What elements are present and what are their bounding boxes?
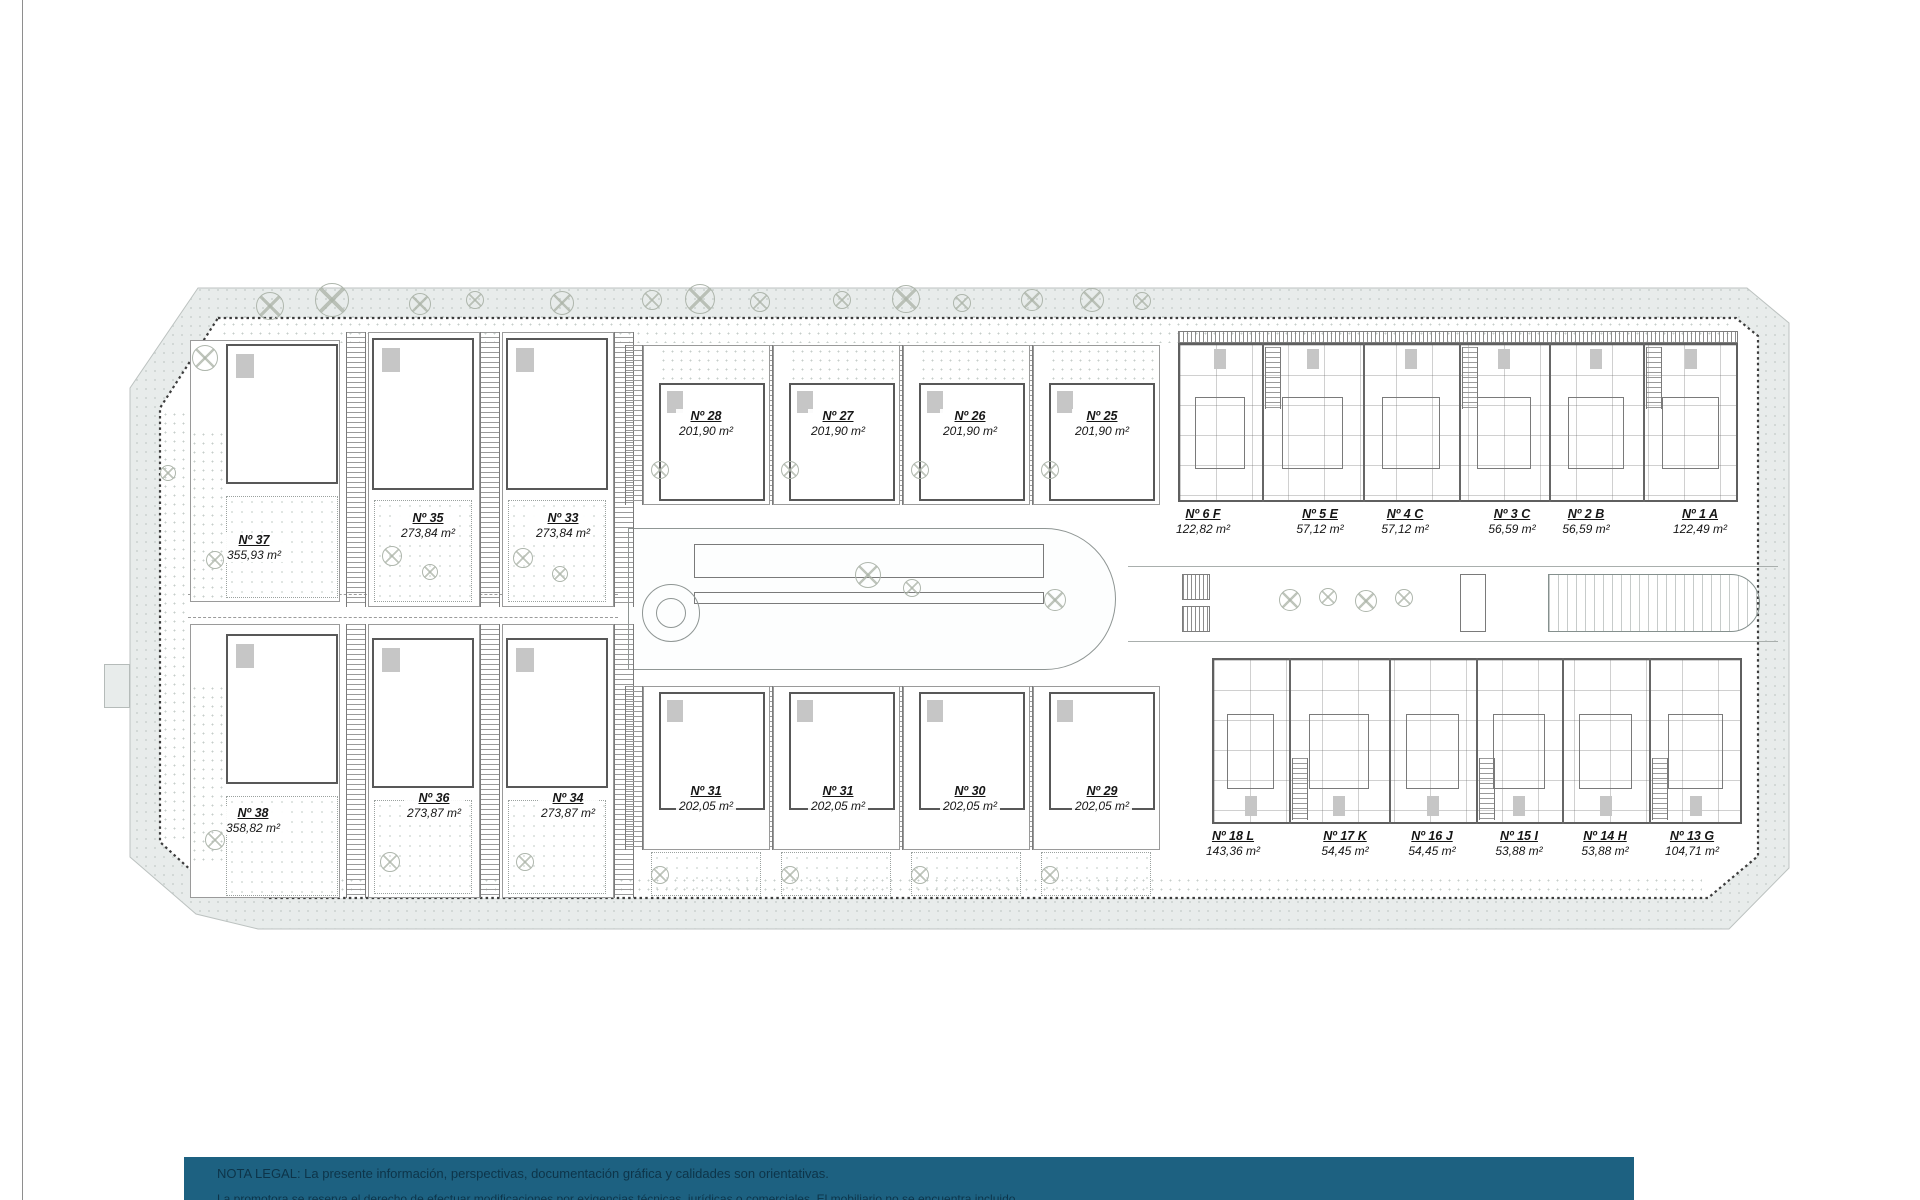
unit-number-label: Nº 37 (227, 533, 281, 548)
unit-number-label: Nº 13 G (1665, 829, 1719, 844)
tree-icon (1041, 461, 1059, 479)
stair-core (1057, 391, 1073, 413)
unit-tag: Nº 14 H53,88 m² (1578, 829, 1631, 858)
apartment-room (1568, 397, 1624, 469)
stair-band (625, 686, 643, 850)
unit-tag: Nº 18 L143,36 m² (1203, 829, 1263, 858)
unit-tag: Nº 29202,05 m² (1072, 784, 1132, 813)
tree-icon (781, 461, 799, 479)
unit-area-label: 273,87 m² (541, 806, 595, 820)
tree-icon (160, 465, 176, 481)
apartment-room (1668, 714, 1724, 789)
unit-number-label: Nº 1 A (1673, 507, 1727, 522)
tree-icon (409, 293, 431, 315)
parking-pad (1182, 606, 1210, 632)
tree-icon (911, 866, 929, 884)
unit-number-label: Nº 38 (226, 806, 280, 821)
stair-band (346, 332, 366, 607)
apartment-room (1662, 397, 1719, 469)
unit-number-label: Nº 30 (943, 784, 997, 799)
unit-number-label: Nº 16 J (1408, 829, 1455, 844)
stair-band (1292, 758, 1308, 820)
tree-icon (516, 853, 534, 871)
unit-number-label: Nº 34 (541, 791, 595, 806)
unit-number-label: Nº 6 F (1176, 507, 1230, 522)
unit-area-label: 104,71 m² (1665, 844, 1719, 858)
tree-icon (422, 564, 438, 580)
unit-tag: Nº 6 F122,82 m² (1173, 507, 1233, 536)
tree-icon (550, 291, 574, 315)
stair-band (346, 624, 366, 898)
stair-core (1057, 700, 1073, 722)
party-wall (1476, 658, 1478, 824)
stair-core (516, 648, 534, 672)
entry-core (1245, 796, 1257, 816)
tree-icon (651, 866, 669, 884)
unit-area-label: 202,05 m² (943, 799, 997, 813)
tree-icon (1133, 292, 1151, 310)
tree-icon (781, 866, 799, 884)
tree-icon (651, 461, 669, 479)
tree-icon (380, 852, 400, 872)
tree-icon (1319, 588, 1337, 606)
tree-icon (1044, 589, 1066, 611)
tree-icon (855, 562, 881, 588)
unit-tag: Nº 38358,82 m² (223, 806, 283, 835)
party-wall (1549, 343, 1551, 502)
unit-number-label: Nº 33 (536, 511, 590, 526)
tree-icon (256, 292, 284, 320)
stair-band (480, 332, 500, 607)
unit-tag: Nº 37355,93 m² (224, 533, 284, 562)
unit-tag: Nº 4 C57,12 m² (1378, 507, 1431, 536)
party-wall (1459, 343, 1461, 502)
unit-tag: Nº 13 G104,71 m² (1662, 829, 1722, 858)
unit-area-label: 201,90 m² (811, 424, 865, 438)
roof-hatch (1178, 331, 1738, 343)
unit-number-label: Nº 27 (811, 409, 865, 424)
entry-core (1498, 349, 1510, 369)
brochure-page: { "plan": { "colors": { "street_band": "… (0, 0, 1920, 1200)
stair-core (382, 648, 400, 672)
unit-area-label: 201,90 m² (1075, 424, 1129, 438)
unit-tag: Nº 31202,05 m² (676, 784, 736, 813)
stair-core (516, 348, 534, 372)
apartment-room (1406, 714, 1458, 789)
unit-area-label: 143,36 m² (1206, 844, 1260, 858)
tree-icon (206, 551, 224, 569)
apartment-room (1195, 397, 1245, 469)
villa-garden (190, 430, 224, 598)
entry-core (1600, 796, 1612, 816)
unit-number-label: Nº 35 (401, 511, 455, 526)
stair-band (1265, 347, 1281, 409)
unit-area-label: 54,45 m² (1321, 844, 1368, 858)
apartment-room (1227, 714, 1273, 789)
party-wall (1289, 658, 1291, 824)
legal-note-text-clipped: La promotora se reserva el derecho de ef… (217, 1192, 1019, 1200)
party-wall (1389, 658, 1391, 824)
unit-area-label: 273,84 m² (536, 526, 590, 540)
tree-icon (513, 548, 533, 568)
unit-tag: Nº 26201,90 m² (940, 409, 1000, 438)
unit-number-label: Nº 31 (679, 784, 733, 799)
unit-number-label: Nº 18 L (1206, 829, 1260, 844)
unit-area-label: 56,59 m² (1488, 522, 1535, 536)
tree-icon (1355, 590, 1377, 612)
path-line (188, 617, 618, 618)
spiral-stair (656, 598, 686, 628)
tree-icon (1279, 589, 1301, 611)
stair-core (927, 700, 943, 722)
entry-core (1513, 796, 1525, 816)
party-wall (1363, 343, 1365, 502)
entry-core (1405, 349, 1417, 369)
unit-area-label: 273,84 m² (401, 526, 455, 540)
unit-number-label: Nº 25 (1075, 409, 1129, 424)
unit-area-label: 57,12 m² (1296, 522, 1343, 536)
unit-number-label: Nº 5 E (1296, 507, 1343, 522)
site-plan: Nº 37355,93 m²Nº 35273,84 m²Nº 33273,84 … (0, 0, 1920, 1200)
party-wall (1562, 658, 1564, 824)
unit-number-label: Nº 29 (1075, 784, 1129, 799)
stair-band (1646, 347, 1662, 409)
entry-core (1333, 796, 1345, 816)
unit-tag: Nº 28201,90 m² (676, 409, 736, 438)
unit-tag: Nº 36273,87 m² (404, 791, 464, 820)
tree-icon (1395, 589, 1413, 607)
unit-area-label: 122,49 m² (1673, 522, 1727, 536)
unit-area-label: 56,59 m² (1562, 522, 1609, 536)
unit-number-label: Nº 31 (811, 784, 865, 799)
unit-number-label: Nº 2 B (1562, 507, 1609, 522)
unit-area-label: 57,12 m² (1381, 522, 1428, 536)
unit-number-label: Nº 36 (407, 791, 461, 806)
unit-area-label: 202,05 m² (679, 799, 733, 813)
unit-area-label: 273,87 m² (407, 806, 461, 820)
apartment-room (1309, 714, 1369, 789)
stair-band (1652, 758, 1668, 820)
tree-icon (192, 345, 218, 371)
entry-core (1307, 349, 1319, 369)
unit-tag: Nº 5 E57,12 m² (1293, 507, 1346, 536)
entry-core (1685, 349, 1697, 369)
unit-number-label: Nº 26 (943, 409, 997, 424)
unit-tag: Nº 15 I53,88 m² (1492, 829, 1545, 858)
unit-area-label: 202,05 m² (1075, 799, 1129, 813)
entry-core (1690, 796, 1702, 816)
stair-core (797, 700, 813, 722)
unit-tag: Nº 33273,84 m² (533, 511, 593, 540)
unit-tag: Nº 31202,05 m² (808, 784, 868, 813)
apartment-room (1282, 397, 1343, 469)
apartment-room (1493, 714, 1545, 789)
unit-tag: Nº 3 C56,59 m² (1485, 507, 1538, 536)
unit-tag: Nº 34273,87 m² (538, 791, 598, 820)
tree-icon (911, 461, 929, 479)
parking-pad (1460, 574, 1486, 632)
stair-core (236, 354, 254, 378)
tree-icon (685, 284, 715, 314)
ramp (1548, 574, 1760, 632)
entry-core (1590, 349, 1602, 369)
tree-icon (466, 291, 484, 309)
townhouse-garden (789, 347, 895, 381)
unit-number-label: Nº 3 C (1488, 507, 1535, 522)
unit-tag: Nº 16 J54,45 m² (1405, 829, 1458, 858)
unit-number-label: Nº 28 (679, 409, 733, 424)
boundary-notch (104, 664, 130, 708)
legal-note-text: NOTA LEGAL: La presente información, per… (217, 1166, 829, 1182)
unit-area-label: 54,45 m² (1408, 844, 1455, 858)
tree-icon (1041, 866, 1059, 884)
tree-icon (642, 290, 662, 310)
unit-number-label: Nº 14 H (1581, 829, 1628, 844)
unit-area-label: 201,90 m² (943, 424, 997, 438)
stair-band (1462, 347, 1478, 409)
townhouse-garden (1049, 347, 1155, 381)
tree-icon (953, 294, 971, 312)
unit-area-label: 53,88 m² (1581, 844, 1628, 858)
apartment-room (1477, 397, 1531, 469)
party-wall (1649, 658, 1651, 824)
entry-core (1214, 349, 1226, 369)
apartment-room (1382, 397, 1440, 469)
stair-core (667, 700, 683, 722)
party-wall (1262, 343, 1264, 502)
party-wall (1643, 343, 1645, 502)
stair-band (625, 345, 643, 505)
tree-icon (1080, 288, 1104, 312)
unit-tag: Nº 2 B56,59 m² (1559, 507, 1612, 536)
unit-tag: Nº 30202,05 m² (940, 784, 1000, 813)
unit-area-label: 122,82 m² (1176, 522, 1230, 536)
stair-core (236, 644, 254, 668)
stair-band (480, 624, 500, 898)
unit-number-label: Nº 4 C (1381, 507, 1428, 522)
apartment-room (1579, 714, 1631, 789)
stair-core (382, 348, 400, 372)
parking-pad (1182, 574, 1210, 600)
unit-tag: Nº 27201,90 m² (808, 409, 868, 438)
tree-icon (892, 285, 920, 313)
unit-tag: Nº 1 A122,49 m² (1670, 507, 1730, 536)
legal-note-bar: NOTA LEGAL: La presente información, per… (184, 1157, 1634, 1200)
unit-tag: Nº 25201,90 m² (1072, 409, 1132, 438)
unit-number-label: Nº 15 I (1495, 829, 1542, 844)
pool-deck (694, 592, 1044, 604)
unit-tag: Nº 35273,84 m² (398, 511, 458, 540)
tree-icon (1021, 289, 1043, 311)
tree-icon (903, 579, 921, 597)
entry-core (1427, 796, 1439, 816)
tree-icon (833, 291, 851, 309)
unit-tag: Nº 17 K54,45 m² (1318, 829, 1371, 858)
townhouse-garden (919, 347, 1025, 381)
unit-area-label: 53,88 m² (1495, 844, 1542, 858)
tree-icon (315, 283, 349, 317)
tree-icon (552, 566, 568, 582)
tree-icon (750, 292, 770, 312)
unit-area-label: 355,93 m² (227, 548, 281, 562)
unit-area-label: 202,05 m² (811, 799, 865, 813)
unit-area-label: 358,82 m² (226, 821, 280, 835)
unit-area-label: 201,90 m² (679, 424, 733, 438)
unit-number-label: Nº 17 K (1321, 829, 1368, 844)
townhouse-garden (659, 347, 765, 381)
tree-icon (382, 546, 402, 566)
